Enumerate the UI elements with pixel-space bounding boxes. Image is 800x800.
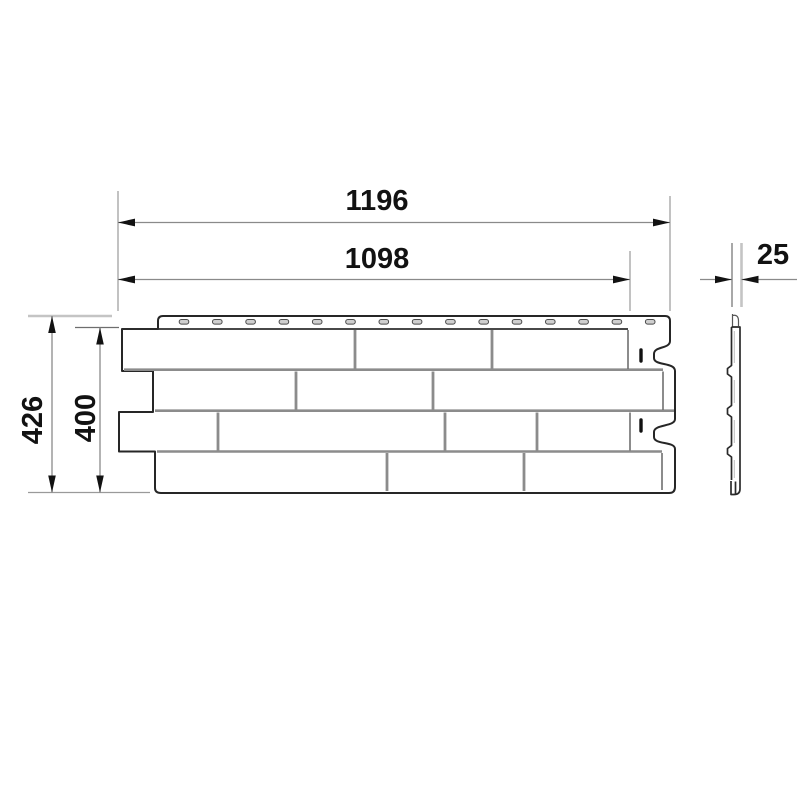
dim-width-nominal: 1098: [118, 243, 630, 311]
nail-slot: [179, 320, 189, 325]
dim-label-height-nominal: 400: [70, 394, 102, 442]
nail-slot: [279, 320, 289, 325]
nail-slot: [645, 320, 655, 325]
drawing-canvas: 1196 1098 25 426: [0, 0, 800, 800]
nail-slot: [346, 320, 356, 325]
nail-slot: [379, 320, 389, 325]
arrow-down: [96, 476, 104, 493]
nail-slot: [546, 320, 556, 325]
nail-hem-edge: [733, 314, 739, 327]
nail-slot: [446, 320, 456, 325]
arrow-left: [118, 219, 135, 227]
side-view: [728, 314, 741, 495]
panel-dimension-drawing: 1196 1098 25 426: [0, 0, 800, 800]
nail-slot: [512, 320, 522, 325]
nail-slot: [579, 320, 589, 325]
profile-steps: [728, 327, 732, 480]
arrow-inward-right: [742, 276, 759, 284]
nail-slot: [412, 320, 422, 325]
nail-slot: [246, 320, 256, 325]
arrow-left: [118, 276, 135, 284]
dim-label-width-nominal: 1098: [345, 243, 410, 275]
arrow-right: [653, 219, 670, 227]
front-view: [119, 316, 675, 493]
nail-slot: [213, 320, 223, 325]
arrow-right: [613, 276, 630, 284]
dim-label-width-total: 1196: [346, 185, 409, 217]
nail-slot: [612, 320, 622, 325]
nail-slot-row: [179, 320, 655, 325]
dim-label-height-total: 426: [17, 396, 49, 444]
panel-outline: [119, 316, 675, 493]
nail-slot: [479, 320, 489, 325]
arrow-inward-left: [715, 276, 732, 284]
dim-thickness: 25: [700, 239, 797, 307]
nail-slot: [312, 320, 322, 325]
arrow-down: [48, 476, 56, 493]
dim-label-thickness: 25: [757, 239, 789, 271]
arrow-up: [96, 328, 104, 345]
dim-height-nominal: 400: [70, 328, 119, 493]
arrow-up: [48, 316, 56, 333]
